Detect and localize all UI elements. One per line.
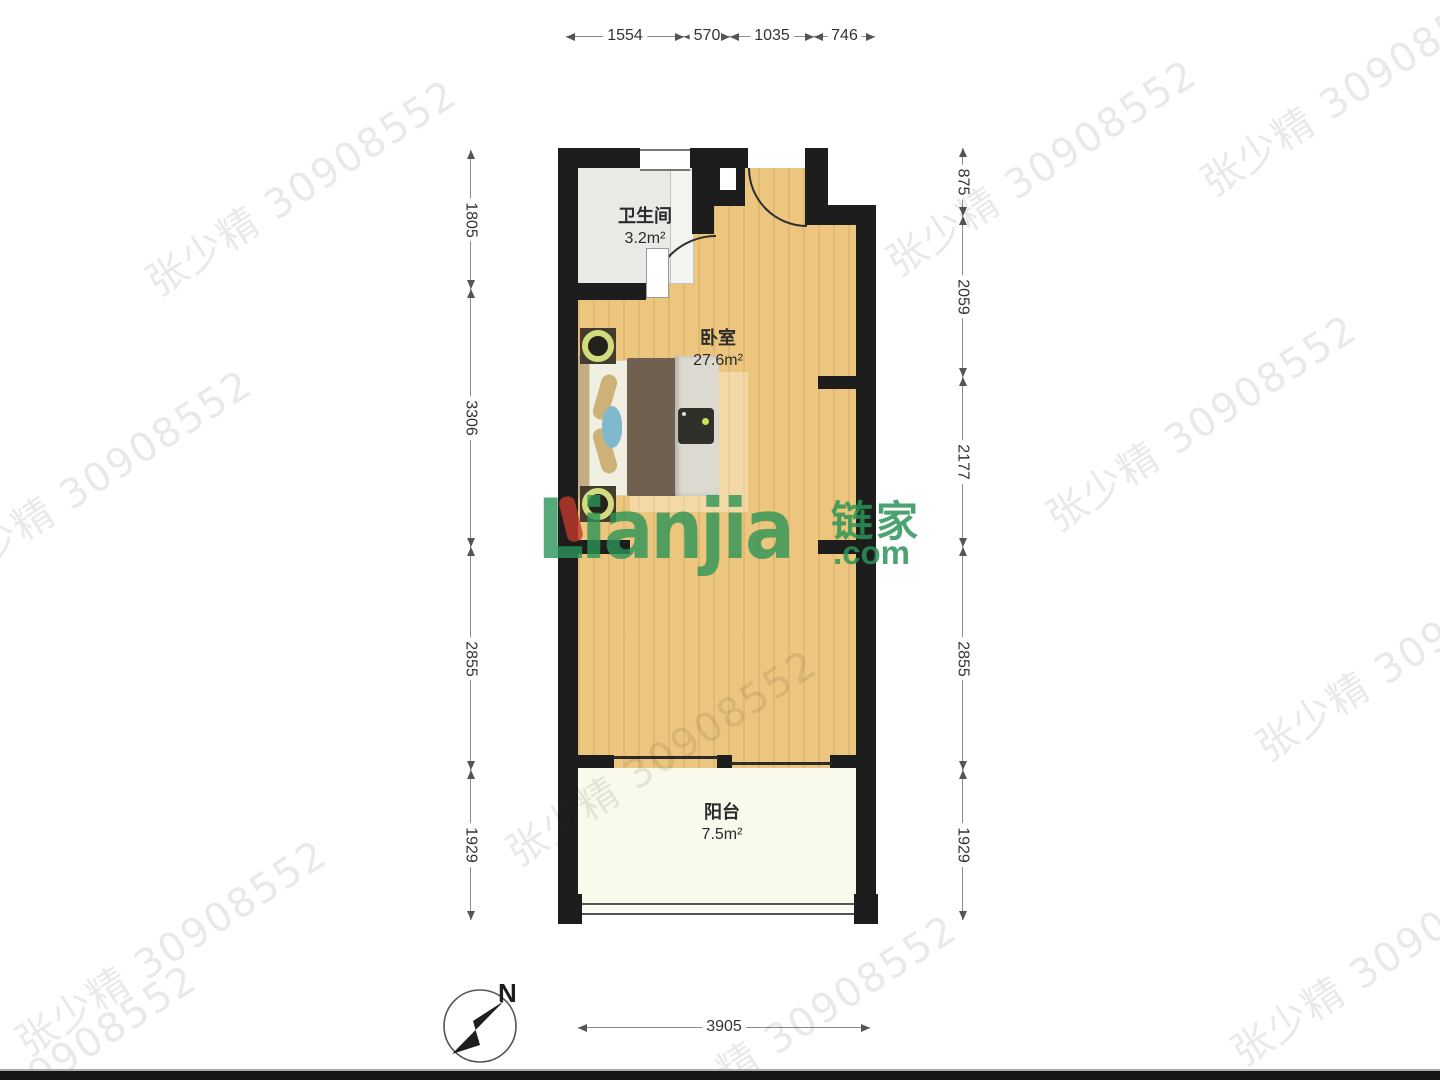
watermark-text: 张少精 30908552 — [1033, 298, 1367, 543]
dim-label: 2059 — [954, 275, 972, 319]
bathroom-window — [640, 149, 690, 171]
dim-label: 2855 — [954, 637, 972, 681]
bed-blue-cushion — [602, 406, 622, 448]
bed-tray-light — [702, 418, 709, 425]
watermark-text: 张少精 30908552 — [3, 823, 337, 1068]
compass-north-label: N — [498, 978, 517, 1009]
dim-right-2059: 2059 — [962, 216, 963, 377]
dim-left-3306: 3306 — [470, 289, 471, 547]
dim-label: 3306 — [462, 396, 480, 440]
dim-label: 1929 — [954, 823, 972, 867]
dim-label: 2855 — [462, 637, 480, 681]
wall-partition-left — [558, 540, 630, 554]
sliding-door-track-b — [730, 762, 832, 765]
balcony-label: 阳台 7.5m² — [662, 800, 782, 846]
dim-label: 570 — [690, 27, 725, 45]
bedroom-area: 27.6m² — [658, 350, 778, 372]
balcony-name: 阳台 — [662, 800, 782, 824]
watermark-text: 张少精 30908552 — [633, 898, 967, 1080]
wall-balcony-divider-right — [830, 755, 876, 768]
dim-right-2855: 2855 — [962, 547, 963, 770]
dim-left-1929: 1929 — [470, 770, 471, 920]
floorplan-page: 卫生间 3.2m² 卧室 27.6m² 阳台 7.5m² 1554 570 10… — [0, 0, 1440, 1080]
dim-left-2855: 2855 — [470, 547, 471, 770]
wall-top-a — [558, 148, 640, 168]
dim-top-570: 570 — [684, 36, 730, 37]
balcony-area: 7.5m² — [662, 824, 782, 846]
dim-right-2177: 2177 — [962, 377, 963, 547]
wall-balcony-post-left — [558, 894, 582, 924]
dim-label: 1035 — [750, 27, 794, 45]
watermark-text: 张少精 30908552 — [0, 353, 262, 598]
dim-left-1805: 1805 — [470, 150, 471, 289]
dim-top-746: 746 — [814, 36, 875, 37]
bathroom-door-leaf — [646, 248, 669, 298]
watermark-text: 张少精 30908552 — [1218, 833, 1440, 1078]
watermark-text: 张少精 30908552 — [1243, 528, 1440, 773]
wall-left — [558, 148, 578, 922]
bed-duvet-dark — [627, 358, 677, 496]
dim-label: 1554 — [603, 27, 647, 45]
dim-right-1929: 1929 — [962, 770, 963, 920]
sliding-door-track-a — [613, 756, 719, 759]
dim-top-1554: 1554 — [566, 36, 684, 37]
bathroom-name: 卫生间 — [595, 204, 695, 228]
wall-balcony-post-right — [854, 894, 878, 924]
watermark-text: 张少精 30908552 — [1188, 0, 1440, 207]
dim-label: 746 — [827, 27, 862, 45]
dim-right-875: 875 — [962, 148, 963, 216]
watermark-text: 张少精 30908552 — [0, 948, 207, 1080]
watermark-text: 张少精 30908552 — [133, 63, 467, 308]
watermark-text: 张少精 30908552 — [873, 43, 1207, 288]
wall-right — [856, 205, 876, 922]
dim-label: 875 — [954, 165, 972, 200]
bathroom-area: 3.2m² — [595, 228, 695, 250]
wall-balcony-divider-left — [578, 755, 614, 768]
dim-label: 3905 — [702, 1018, 746, 1036]
dim-label: 1805 — [462, 198, 480, 242]
shaft-notch — [720, 168, 736, 190]
dim-bottom-3905: 3905 — [578, 1027, 870, 1028]
wall-bathroom-right — [692, 148, 714, 234]
dim-label: 1929 — [462, 823, 480, 867]
wall-bathroom-bottom — [558, 283, 646, 300]
dim-label: 2177 — [954, 440, 972, 484]
bathroom-label: 卫生间 3.2m² — [595, 204, 695, 250]
exterior-patch — [828, 146, 878, 206]
balcony-window-railing — [582, 903, 854, 915]
bottom-bar — [0, 1071, 1440, 1080]
stool-ring-bottom — [582, 488, 614, 520]
stool-ring-top — [582, 330, 614, 362]
wall-partition-right — [818, 540, 856, 554]
bed-tray-speck — [682, 412, 686, 416]
compass-icon — [440, 975, 540, 1075]
bedroom-label: 卧室 27.6m² — [658, 326, 778, 372]
wall-stub-right-upper — [818, 376, 856, 389]
bedroom-name: 卧室 — [658, 326, 778, 350]
dim-top-1035: 1035 — [730, 36, 814, 37]
